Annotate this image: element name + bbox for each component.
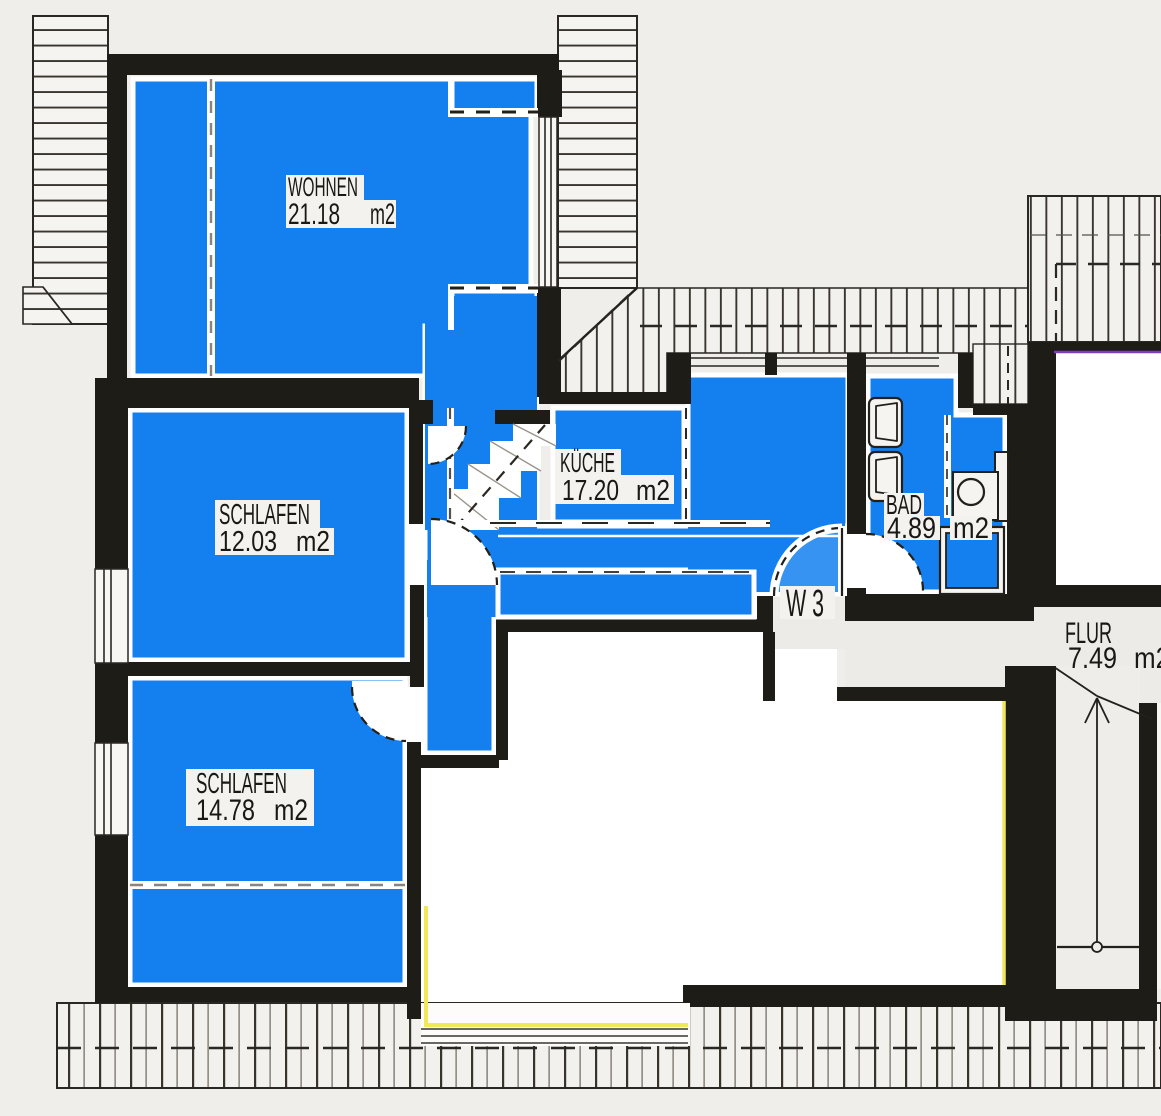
svg-text:m2: m2 [636, 475, 670, 507]
svg-text:17.20: 17.20 [562, 475, 619, 507]
svg-text:14.78: 14.78 [196, 794, 255, 827]
svg-text:m2: m2 [1134, 642, 1161, 675]
svg-text:KÜCHE: KÜCHE [560, 447, 615, 478]
svg-text:m2: m2 [274, 794, 308, 827]
svg-text:21.18: 21.18 [288, 198, 340, 231]
svg-text:m2: m2 [370, 198, 395, 231]
svg-text:m2: m2 [296, 526, 330, 558]
svg-text:12.03: 12.03 [219, 526, 277, 558]
svg-text:7.49: 7.49 [1068, 642, 1117, 675]
svg-text:4.89: 4.89 [887, 512, 936, 545]
svg-text:m2: m2 [953, 512, 989, 545]
svg-text:W 3: W 3 [786, 583, 824, 625]
